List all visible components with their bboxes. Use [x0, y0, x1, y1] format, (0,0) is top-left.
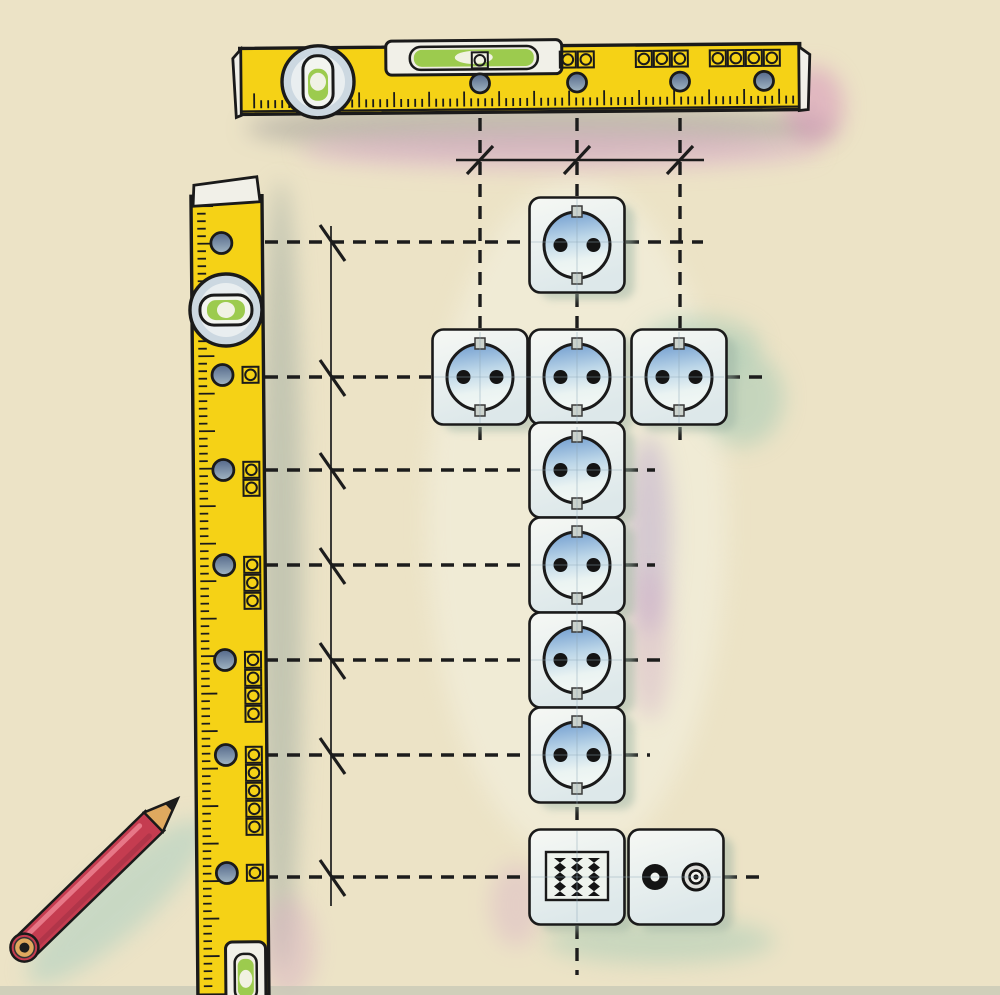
socket-outlet-plate — [530, 330, 635, 432]
illustration-stage — [0, 0, 1000, 995]
level-hole — [470, 74, 489, 93]
level-hole — [214, 554, 235, 575]
level-hole — [754, 71, 773, 90]
vial-bubble — [310, 73, 326, 91]
isolator-plate — [530, 830, 635, 932]
pin-hole-left — [554, 238, 568, 252]
socket-outlet-plate — [530, 613, 635, 715]
socket-outlet-plate — [433, 330, 538, 432]
image-bottom-strip — [0, 986, 1000, 995]
level-hole — [212, 364, 233, 385]
vertical-spirit-level — [189, 177, 269, 995]
level-hole — [215, 744, 236, 765]
level-hole — [216, 862, 237, 883]
level-end-cap-right — [799, 46, 811, 110]
socket-outlet-plate — [530, 198, 635, 300]
airbrush-wash — [300, 130, 820, 170]
airbrush-wash — [630, 570, 670, 720]
socket-outlet-plate — [530, 423, 635, 525]
pin-hole-right — [587, 238, 601, 252]
level-hole — [214, 649, 235, 670]
socket-outlet-plate — [632, 330, 737, 432]
level-hole — [567, 73, 586, 92]
illustration-canvas — [0, 0, 1000, 995]
socket-outlet-plate — [530, 708, 635, 810]
vial-bubble — [217, 302, 235, 318]
tv-antenna-plate — [629, 830, 734, 932]
horizontal-spirit-level — [233, 37, 811, 118]
level-hole — [211, 232, 232, 253]
socket-outlet-plate — [530, 518, 635, 620]
level-hole — [670, 72, 689, 91]
level-hole — [213, 459, 234, 480]
